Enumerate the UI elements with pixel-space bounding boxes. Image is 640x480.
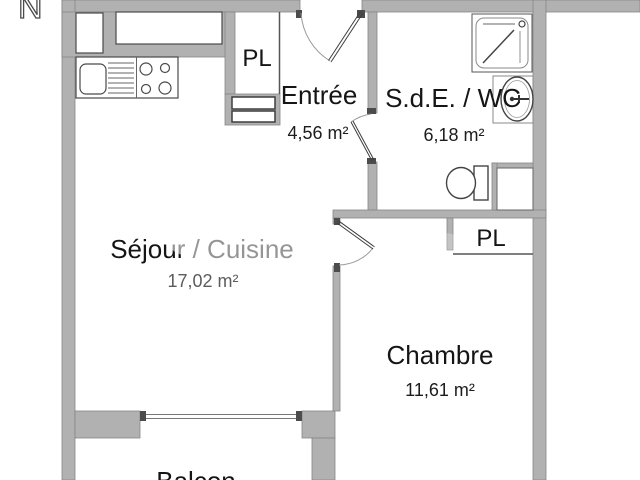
sink-drainer: [108, 63, 134, 93]
entrance-door: [296, 10, 365, 62]
floor-plan-canvas: N: [0, 0, 640, 480]
window-end-cap: [296, 411, 302, 421]
door-leaf: [351, 122, 372, 161]
compass-north-label: N: [18, 0, 43, 26]
wall-closet-entree-left: [225, 12, 235, 94]
room-area-entree: 4,56 m²: [287, 123, 348, 143]
door-leaf: [339, 221, 375, 247]
room-area-sde-wc: 6,18 m²: [423, 125, 484, 145]
door-swing-arc: [351, 114, 371, 122]
room-label-balcon: Balcon: [156, 466, 236, 480]
wall-right-outer: [533, 0, 546, 480]
wall-sejour-bottom-left: [75, 411, 140, 438]
closet-label-entree: PL: [242, 45, 271, 72]
toilet: [447, 166, 489, 200]
window-end-cap: [140, 411, 146, 421]
door-swing-arc: [301, 13, 330, 61]
wall-top-left: [62, 0, 300, 12]
door-leaf: [331, 13, 363, 62]
wall-mid-horizontal: [333, 210, 546, 218]
toilet-bowl: [447, 168, 476, 199]
kitchen-sink: [80, 64, 106, 94]
door-swing-arc: [339, 248, 373, 265]
room-label-sde-wc: S.d.E. / WC: [385, 83, 521, 113]
wall-balcon-right: [312, 438, 335, 480]
wall-entree-sde-lower: [368, 162, 377, 210]
floor-plan: N: [0, 0, 640, 480]
balcony-window: [140, 411, 302, 421]
cupboard-shelves: [232, 97, 275, 122]
wall-niche-left: [492, 163, 497, 210]
wall-sejour-chambre: [333, 266, 340, 411]
bathroom-door: [351, 108, 376, 164]
wall-cabinet: [116, 12, 222, 44]
wall-cabinet: [76, 13, 103, 53]
bedroom-door: [334, 218, 375, 272]
wall-sejour-bottom-right: [302, 411, 335, 438]
room-label-chambre: Chambre: [387, 340, 494, 370]
shower: [472, 14, 532, 72]
shower-head-icon: [519, 21, 525, 27]
wall-entree-sde-upper: [368, 12, 377, 113]
wall-top-right: [362, 0, 640, 12]
duct-niche: [497, 168, 533, 210]
room-label-entree: Entrée: [281, 80, 358, 110]
wall-niche-top: [492, 163, 533, 168]
room-area-chambre: 11,61 m²: [405, 380, 475, 400]
door-jamb: [367, 108, 376, 114]
door-leaf: [337, 223, 373, 249]
wall-left-outer: [62, 0, 75, 480]
door-jamb: [334, 263, 340, 272]
door-leaf: [329, 12, 361, 61]
closet-label-chambre: PL: [476, 225, 505, 252]
door-leaf: [353, 121, 374, 160]
